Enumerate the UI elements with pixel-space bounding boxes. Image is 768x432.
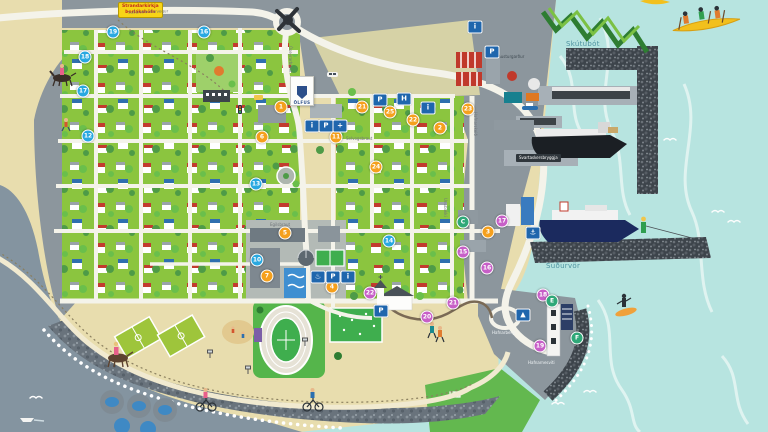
map-marker-pink[interactable]: 22 [364,287,377,300]
map-marker-orange[interactable]: 1 [275,101,288,114]
pier-label: Svartaskersbryggja [516,154,561,162]
pool-icon[interactable]: ♨ [311,271,326,284]
hotel-icon[interactable]: H [397,93,412,106]
health-icon[interactable]: + [333,120,348,133]
map-marker-pink[interactable]: 15 [457,246,470,259]
map-marker-blue[interactable]: 13 [250,178,263,191]
map-marker-orange[interactable]: 3 [482,226,495,239]
map-marker-blue[interactable]: 17 [77,85,90,98]
parking-icon[interactable]: P [374,305,389,318]
map-marker-orange[interactable]: 5 [279,227,292,240]
street-label-oseyrarbraut: Óseyrarbraut [288,46,293,73]
info-icon[interactable]: i [421,102,436,115]
street-label-hafnarskeid: Hafnarskeið [473,112,478,136]
map-marker-orange[interactable]: 2 [434,122,447,135]
harbor-icon[interactable]: ⚓ [526,227,541,240]
map-marker-orange[interactable]: 23 [462,103,475,116]
info-icon[interactable]: i [305,120,320,133]
parking-icon[interactable]: P [326,271,341,284]
map-marker-green[interactable]: C [457,216,470,229]
map-marker-pink[interactable]: 16 [481,262,494,275]
viewpoint-icon[interactable]: ▲ [516,309,531,322]
street-label-hafnarberg: Hafnarberg [492,330,515,335]
map-marker-orange[interactable]: 24 [370,161,383,174]
map-marker-pink[interactable]: 17 [496,215,509,228]
map-marker-orange[interactable]: 22 [407,114,420,127]
map-marker-blue[interactable]: 10 [251,254,264,267]
map-marker-orange[interactable]: 6 [256,131,269,144]
parking-icon[interactable]: P [485,46,500,59]
parking-icon[interactable]: P [319,120,334,133]
map-marker-orange[interactable]: 7 [261,270,274,283]
olfus-banner: ÖLFUS [290,76,314,106]
map-marker-orange[interactable]: 25 [384,106,397,119]
map-marker-pink[interactable]: 19 [534,340,547,353]
coat-of-arms [297,86,307,99]
map-marker-blue[interactable]: 19 [107,26,120,39]
map-marker-blue[interactable]: 18 [79,51,92,64]
bay-label-skutubot: Skútubót [566,40,600,48]
map-marker-orange[interactable]: 21 [356,101,369,114]
town-map: Strandarkirkja Þorlákshöfn ÖLFUS Skútubó… [0,0,768,432]
map-marker-blue[interactable]: 16 [198,26,211,39]
map-marker-pink[interactable]: 21 [447,297,460,310]
street-label-unubakki: Unubakki [443,198,448,217]
info-icon[interactable]: i [341,271,356,284]
map-marker-blue[interactable]: 14 [383,235,396,248]
info-icon[interactable]: i [468,21,483,34]
map-marker-blue[interactable]: 12 [82,130,95,143]
bay-label-sudurvor: Suðurvör [546,262,580,270]
parking-icon[interactable]: P [373,94,388,107]
breakwater-road-label: Austurgarður [498,54,524,59]
map-overlay: Strandarkirkja Þorlákshöfn ÖLFUS Skútubó… [0,0,768,432]
map-marker-pink[interactable]: 20 [421,311,434,324]
map-marker-green[interactable]: E [546,295,559,308]
street-label-selvogsbraut: Selvogsbraut [346,136,372,141]
lighthouse-label: Hafnarnesviti [528,360,555,365]
banner-text: ÖLFUS [294,100,311,105]
map-marker-green[interactable]: F [571,332,584,345]
